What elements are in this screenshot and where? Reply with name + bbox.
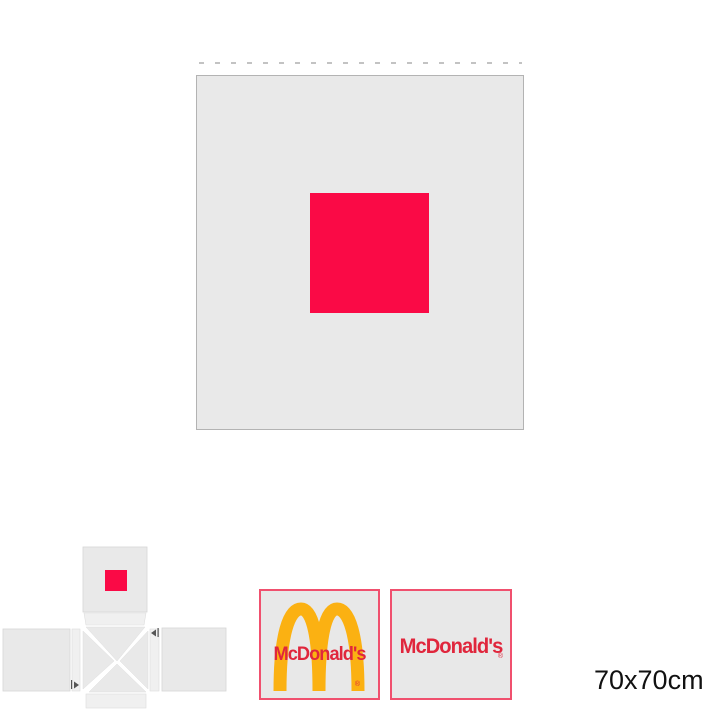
dieline-bottom-wedge (89, 664, 146, 692)
front-panel-preview[interactable] (196, 75, 524, 430)
fold-dashed-line (199, 62, 522, 64)
dieline-left-flap (72, 629, 80, 691)
fold-arrow-right-icon (151, 628, 159, 637)
registered-mark: ® (498, 653, 503, 660)
dieline-top-wedge (86, 627, 145, 661)
logo-option-arches[interactable]: McDonald's ® (259, 589, 380, 700)
design-color-square[interactable] (310, 193, 429, 313)
dieline-design-square (105, 570, 127, 591)
dieline-left-wedge (83, 631, 114, 689)
dieline-bottom-flap (86, 694, 146, 708)
registered-mark: ® (355, 681, 360, 688)
dieline-right-wedge (120, 631, 148, 689)
logo-option-wordmark[interactable]: McDonald's ® (390, 589, 512, 700)
mcdonalds-wordmark: McDonald's (394, 635, 507, 659)
mcdonalds-wordmark: McDonald's (263, 644, 375, 666)
size-label: 70x70cm (594, 665, 704, 696)
dieline-top-panel (83, 547, 147, 612)
dieline-right-panel (162, 628, 226, 691)
fold-arrow-left-icon (71, 680, 79, 689)
dieline-right-flap (150, 629, 159, 691)
dieline-top-flap (84, 613, 146, 625)
dieline-left-panel (3, 629, 70, 691)
design-editor-canvas: McDonald's ® McDonald's ® 70x70cm (0, 0, 720, 720)
